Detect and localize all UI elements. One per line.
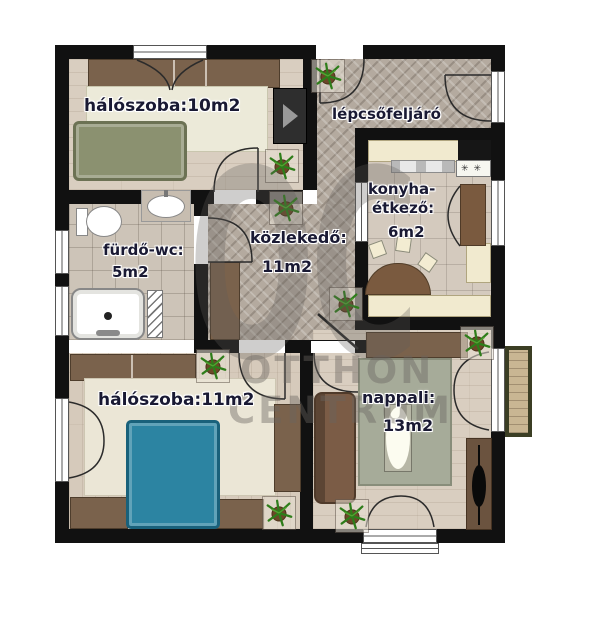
livingroom-door-opening <box>311 341 355 353</box>
bedroom2-bed <box>126 420 220 529</box>
kitchen-area-label: 6m2 <box>388 223 425 241</box>
kitchen-window <box>491 180 505 246</box>
livingroom-french-door <box>363 529 437 543</box>
bedroom2-french-door <box>55 398 69 482</box>
potted-plant <box>461 327 493 359</box>
entrance-steps <box>361 543 439 554</box>
floor-plan: ✳✳ <box>0 0 600 619</box>
livingroom-label: nappali: <box>362 388 435 407</box>
potted-plant <box>266 150 298 182</box>
potted-plant <box>263 497 295 529</box>
hallway-cabinet <box>210 262 240 340</box>
bedroom1-tv <box>273 88 307 144</box>
wall-outer-bottom <box>55 529 505 543</box>
bathroom-area-label: 5m2 <box>112 263 149 281</box>
bathtub-drain <box>104 312 112 320</box>
wall-outer-top <box>55 45 505 59</box>
entry-door-opening <box>316 45 363 59</box>
kitchen-label-line1: konyha- <box>368 180 435 198</box>
potted-plant <box>336 500 368 532</box>
kitchen-door-leaf <box>460 184 486 246</box>
hallway-label: közlekedő: <box>250 228 347 247</box>
wall-staircase-kitchen <box>355 128 491 140</box>
potted-plant <box>197 350 229 382</box>
towel-ladder <box>147 290 163 338</box>
bedroom2-label: hálószoba:11m2 <box>98 390 254 410</box>
potted-plant <box>312 60 344 92</box>
hallway-area-label: 11m2 <box>262 257 312 276</box>
tv-screen-glyph <box>283 104 298 128</box>
livingroom-sideboard <box>366 332 468 358</box>
bathroom-door-opening <box>194 216 208 264</box>
livingroom-balcony-door <box>491 348 505 432</box>
sink-bowl <box>147 195 185 218</box>
potted-plant <box>330 288 362 320</box>
bedroom2-wardrobe-top <box>70 354 196 381</box>
kitchen-counter-right <box>466 243 491 283</box>
tv-console <box>466 438 492 530</box>
bathroom-window-1 <box>55 230 69 274</box>
bathtub <box>71 288 145 340</box>
kitchen-label-line2: étkező: <box>372 199 434 217</box>
bedroom1-door-opening <box>214 190 256 204</box>
kitchen-counter-bottom <box>368 295 491 317</box>
staircase-right-door-opening <box>491 71 505 123</box>
staircase-label: lépcsőfeljáró <box>332 105 441 123</box>
livingroom-area-label: 13m2 <box>383 416 433 435</box>
sofa <box>314 392 356 504</box>
bedroom2-wardrobe-bottom <box>70 497 128 529</box>
bedroom1-wardrobe <box>88 59 280 88</box>
potted-plant <box>270 192 302 224</box>
bedroom2-desk <box>274 404 301 492</box>
kitchen-counter-top <box>368 140 460 162</box>
bedroom1-label: hálószoba:10m2 <box>84 96 240 116</box>
bedroom1-bed <box>73 121 187 181</box>
toilet-bowl <box>86 206 122 237</box>
bathtub-faucet <box>96 330 120 336</box>
tv-console-decor-line <box>478 445 480 525</box>
stove: ✳✳ <box>456 160 491 177</box>
sink-tap <box>164 190 168 197</box>
kitchen-sink-drainer <box>391 160 455 173</box>
refrigerator <box>458 140 491 160</box>
bathroom-window-2 <box>55 286 69 336</box>
kitchen-door-opening <box>355 182 368 242</box>
wall-bedroom2-right <box>300 353 313 529</box>
bedroom1-window <box>133 45 207 59</box>
bedroom2-door-opening <box>239 340 285 353</box>
bathroom-label: fürdő-wc: <box>103 241 184 259</box>
balcony <box>505 346 532 437</box>
